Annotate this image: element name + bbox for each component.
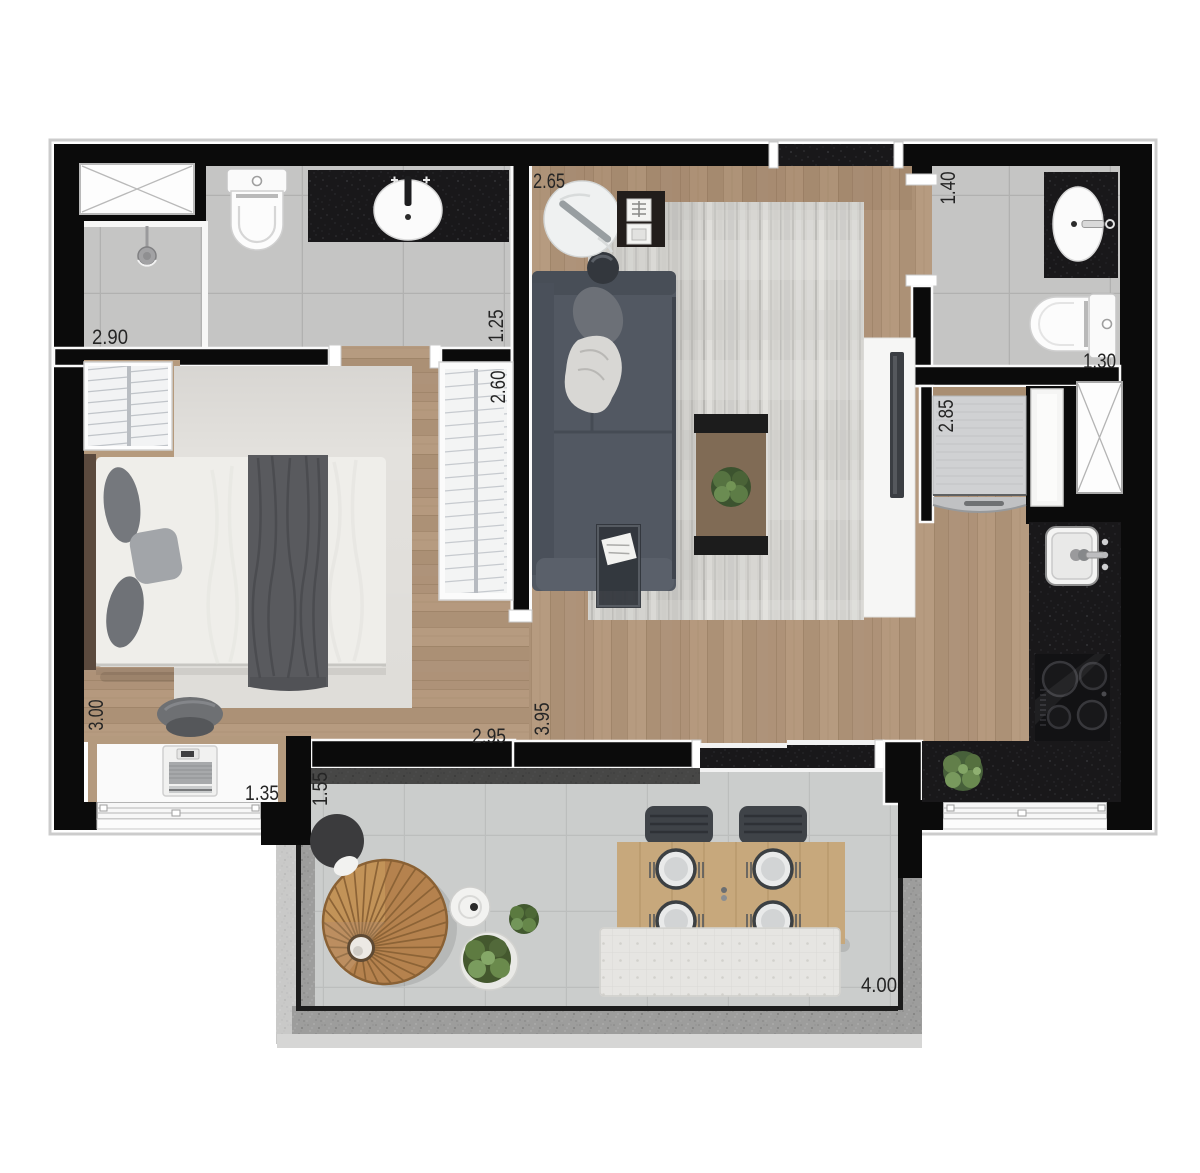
svg-text:4.00: 4.00 [861, 974, 897, 997]
svg-text:2.65: 2.65 [533, 170, 565, 193]
svg-text:2.60: 2.60 [487, 371, 510, 404]
svg-text:3.00: 3.00 [85, 700, 108, 731]
svg-text:1.55: 1.55 [309, 772, 332, 806]
svg-text:2.90: 2.90 [92, 326, 128, 349]
svg-text:1.40: 1.40 [937, 172, 960, 205]
svg-text:3.95: 3.95 [531, 703, 554, 736]
svg-text:1.35: 1.35 [245, 782, 279, 805]
svg-text:1.30: 1.30 [1083, 350, 1116, 373]
svg-text:2.85: 2.85 [935, 400, 958, 433]
svg-text:2.95: 2.95 [472, 725, 506, 748]
svg-text:1.25: 1.25 [485, 310, 508, 343]
